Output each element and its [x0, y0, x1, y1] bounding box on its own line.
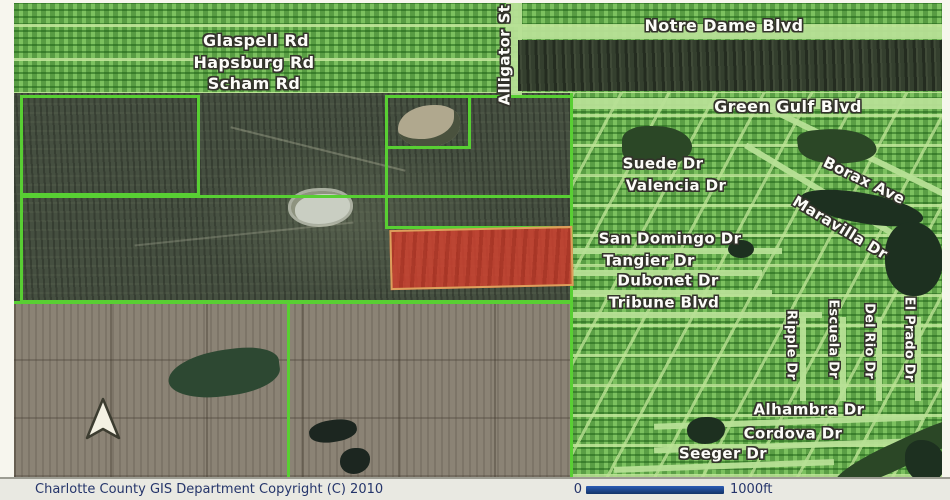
farmland-region [14, 302, 575, 477]
parcel-boundary-line [287, 302, 290, 477]
scale-bar [586, 486, 724, 494]
parcel-boundary-line [14, 301, 573, 304]
north-arrow-icon [83, 396, 123, 446]
escuela-dr-road [840, 317, 846, 401]
street-label-tribune-blvd: Tribune Blvd [609, 296, 720, 311]
street-label-san-domingo-dr: San Domingo Dr [599, 232, 742, 247]
notre-dame-median-woods [518, 40, 942, 91]
map-margin-right [942, 0, 950, 477]
street-label-cordova-dr: Cordova Dr [744, 427, 843, 442]
street-label-suede-dr: Suede Dr [623, 157, 704, 172]
street-label-tangier-dr: Tangier Dr [603, 254, 695, 269]
street-label-escuela-dr: Escuela Dr [827, 299, 840, 378]
street-label-valencia-dr: Valencia Dr [626, 179, 727, 194]
map-canvas[interactable]: Glaspell Rd Hapsburg Rd Scham Rd Alligat… [14, 3, 942, 477]
ripple-dr-road [800, 317, 806, 401]
scale-end-label: 1000ft [730, 482, 773, 497]
map-margin-left [0, 0, 14, 477]
street-label-dubonet-dr: Dubonet Dr [617, 274, 718, 289]
status-bar: Charlotte County GIS Department Copyrigh… [0, 477, 950, 500]
street-label-alligator-st: Alligator St [498, 5, 513, 106]
street-label-hapsburg-rd: Hapsburg Rd [193, 55, 314, 71]
street-label-green-gulf-blvd: Green Gulf Blvd [714, 99, 862, 115]
street-label-scham-rd: Scham Rd [208, 76, 300, 92]
street-label-del-rio-dr: Del Rio Dr [863, 303, 876, 379]
street-label-ripple-dr: Ripple Dr [785, 310, 798, 380]
pond [885, 222, 942, 296]
del-rio-dr-road [876, 317, 882, 401]
map-margin-top [0, 0, 950, 3]
street-label-el-prado-dr: El Prado Dr [903, 297, 916, 382]
parcel-outline[interactable] [20, 95, 200, 196]
copyright-text: Charlotte County GIS Department Copyrigh… [35, 482, 383, 497]
street-label-notre-dame-blvd: Notre Dame Blvd [644, 18, 803, 34]
street-label-seeger-dr: Seeger Dr [679, 447, 767, 462]
parcel-outline[interactable] [385, 95, 471, 149]
gis-map-window: Glaspell Rd Hapsburg Rd Scham Rd Alligat… [0, 0, 950, 500]
waterway [905, 440, 942, 477]
selected-parcel-highlight[interactable] [389, 226, 573, 290]
street-label-glaspell-rd: Glaspell Rd [203, 33, 309, 49]
street-label-alhambra-dr: Alhambra Dr [754, 403, 865, 418]
scale-start-label: 0 [570, 482, 582, 497]
